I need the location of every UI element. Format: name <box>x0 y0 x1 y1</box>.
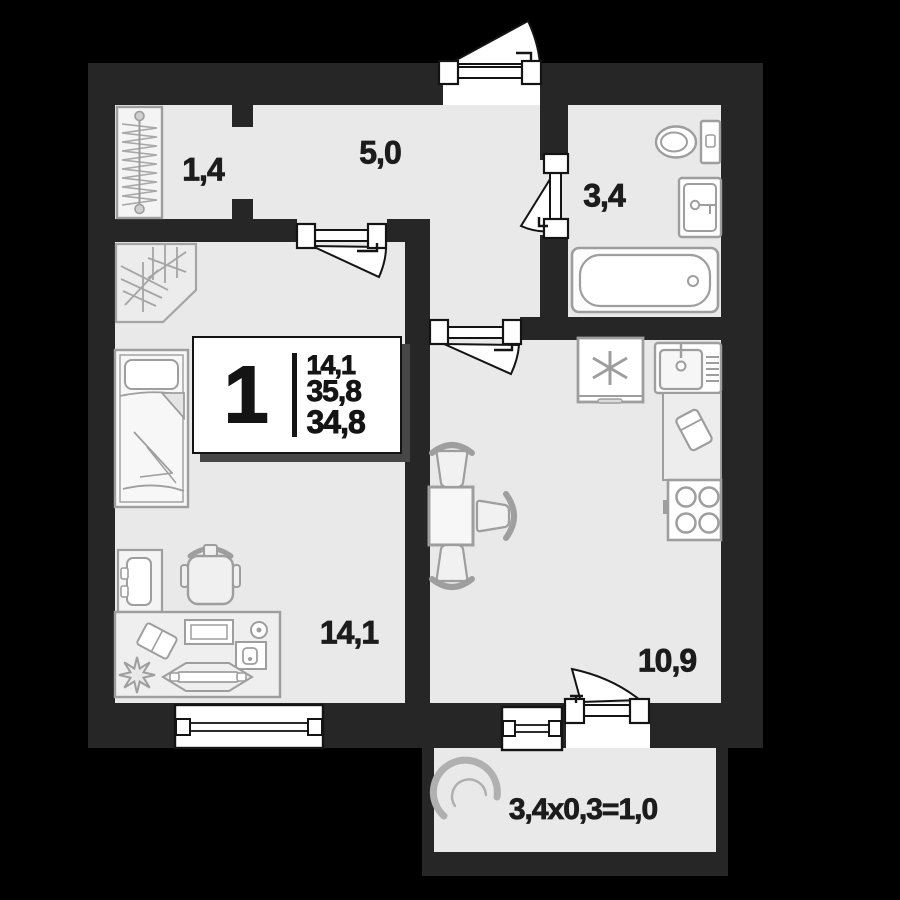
label-bathroom-area: 3,4 <box>583 178 624 215</box>
desk-icon <box>115 612 280 697</box>
wall-kitchen-north <box>520 317 763 340</box>
floor-plan: 1,4 5,0 3,4 14,1 10,9 3,4x0,3=1,0 1 14,1… <box>0 0 900 900</box>
wall-living-north-right <box>387 219 430 242</box>
nightstand-icon <box>118 550 162 612</box>
wall-bathroom-west-upper <box>540 63 568 160</box>
wall-storage-stub-top <box>232 105 253 127</box>
washbasin-icon <box>679 178 721 237</box>
kitchen-window-icon <box>502 707 562 750</box>
phone-dock-icon <box>236 642 266 669</box>
fridge-icon <box>578 338 643 403</box>
living-room-window-icon <box>175 705 323 748</box>
floor-plan-drawing <box>0 0 900 900</box>
info-card: 1 14,1 35,8 34,8 <box>192 336 402 454</box>
wardrobe-icon <box>117 107 162 218</box>
label-storage-area: 1,4 <box>182 152 223 189</box>
room-count: 1 <box>224 355 266 435</box>
floor-corridor <box>430 105 540 317</box>
entrance-door-icon <box>439 21 541 84</box>
kitchen-sink-icon <box>655 343 721 393</box>
stove-icon <box>663 480 721 540</box>
bed-icon <box>115 350 188 507</box>
wall-living-north <box>115 219 297 242</box>
kitchen-counter <box>663 393 721 480</box>
card-divider <box>292 353 297 437</box>
area-reduced: 34,8 <box>307 407 365 437</box>
star-ornament-icon <box>119 657 155 693</box>
bathtub-icon <box>572 248 718 312</box>
wall-living-kitchen-divider <box>405 242 430 703</box>
area-values: 14,1 35,8 34,8 <box>307 353 365 438</box>
wall-storage-stub-bottom <box>232 199 253 221</box>
office-chair-icon <box>181 545 240 604</box>
label-hallway-area: 5,0 <box>359 135 400 172</box>
area-total: 35,8 <box>307 378 365 407</box>
label-kitchen-area: 10,9 <box>638 643 696 680</box>
laptop-icon <box>185 620 233 644</box>
dining-table-icon <box>429 487 473 545</box>
label-balcony-area: 3,4x0,3=1,0 <box>509 793 657 827</box>
label-living-room-area: 14,1 <box>320 615 378 652</box>
